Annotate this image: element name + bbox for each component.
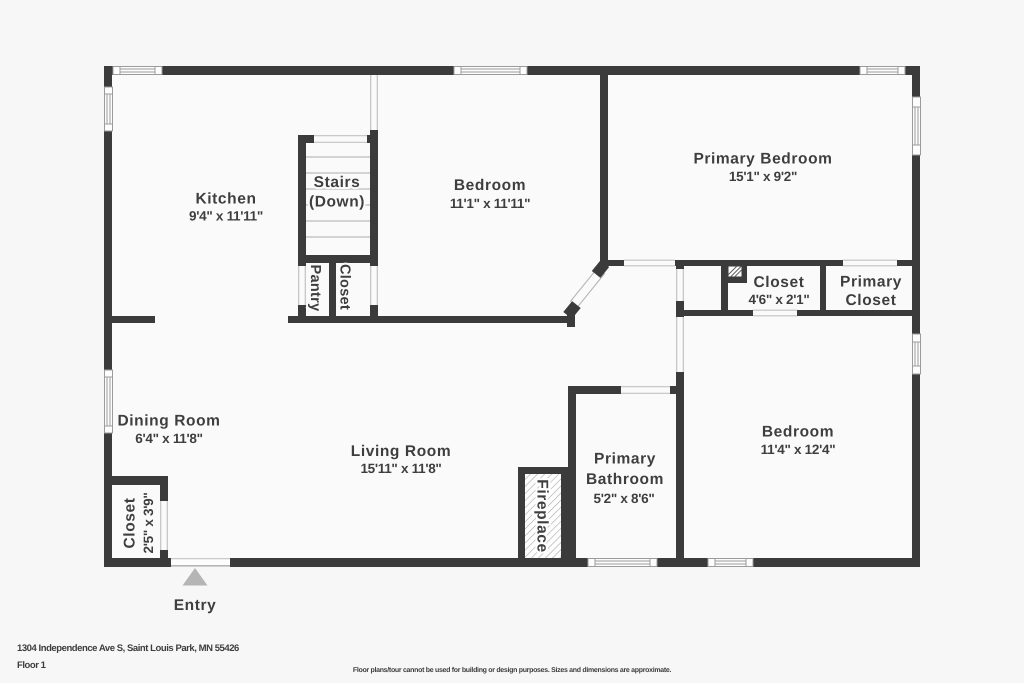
svg-text:Dining Room: Dining Room	[117, 413, 220, 430]
svg-text:Living Room: Living Room	[351, 443, 451, 460]
svg-text:Stairs: Stairs	[314, 174, 361, 191]
svg-text:Primary: Primary	[840, 274, 902, 291]
svg-text:Primary: Primary	[594, 451, 656, 468]
svg-text:5'2" x 8'6": 5'2" x 8'6"	[594, 491, 655, 506]
svg-text:Closet: Closet	[754, 274, 805, 291]
svg-text:15'1" x 9'2": 15'1" x 9'2"	[729, 169, 797, 184]
svg-text:Bedroom: Bedroom	[454, 177, 526, 194]
svg-text:Bedroom: Bedroom	[762, 424, 834, 441]
svg-text:Pantry: Pantry	[307, 265, 323, 312]
svg-text:15'11" x 11'8": 15'11" x 11'8"	[360, 461, 441, 476]
svg-text:Floor 1: Floor 1	[17, 660, 47, 671]
svg-text:Primary Bedroom: Primary Bedroom	[693, 151, 832, 168]
svg-text:Closet: Closet	[846, 292, 897, 309]
svg-text:Bathroom: Bathroom	[586, 471, 664, 488]
svg-text:2'5" x 3'9": 2'5" x 3'9"	[141, 493, 156, 554]
svg-text:Entry: Entry	[174, 597, 217, 614]
svg-text:6'4" x 11'8": 6'4" x 11'8"	[135, 431, 202, 446]
svg-text:Floor plans/tour cannot be use: Floor plans/tour cannot be used for buil…	[353, 666, 672, 674]
svg-text:11'4" x 12'4": 11'4" x 12'4"	[761, 442, 836, 457]
svg-text:Closet: Closet	[122, 498, 139, 549]
svg-text:4'6" x 2'1": 4'6" x 2'1"	[749, 292, 810, 307]
svg-text:Kitchen: Kitchen	[195, 191, 256, 208]
svg-text:(Down): (Down)	[309, 194, 365, 211]
svg-text:11'1" x 11'11": 11'1" x 11'11"	[450, 196, 530, 211]
svg-text:1304 Independence Ave S, Saint: 1304 Independence Ave S, Saint Louis Par…	[17, 643, 239, 654]
svg-text:Closet: Closet	[337, 264, 353, 310]
svg-text:9'4" x 11'11": 9'4" x 11'11"	[189, 209, 263, 224]
svg-text:Fireplace: Fireplace	[534, 479, 551, 552]
